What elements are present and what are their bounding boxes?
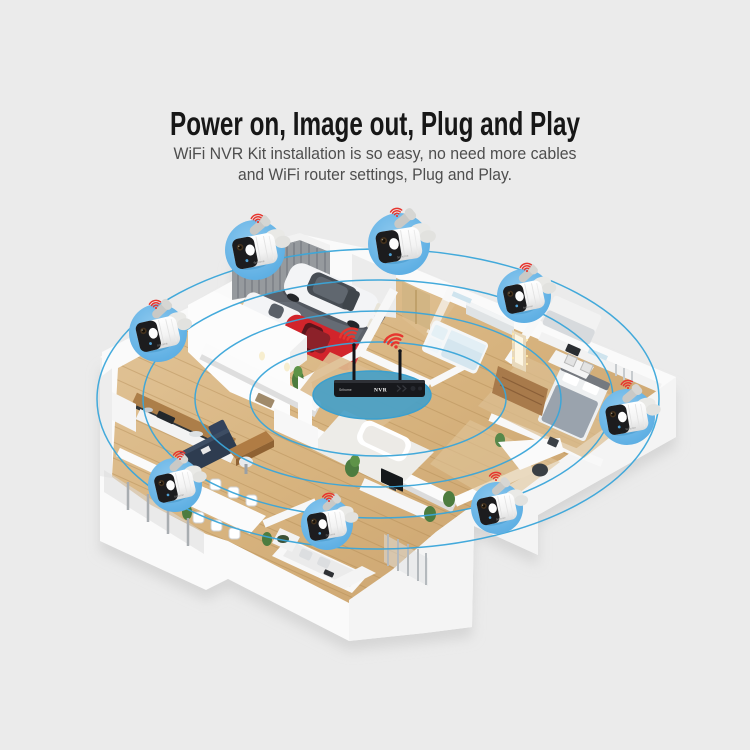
svg-text:Power on, Image out, Plug and: Power on, Image out, Plug and Play <box>170 105 580 142</box>
svg-text:Srihome: Srihome <box>339 388 352 392</box>
svg-text:NVR: NVR <box>374 388 387 394</box>
svg-text:WiFi NVR Kit installation is s: WiFi NVR Kit installation is so easy, no… <box>174 144 577 163</box>
svg-text:and WiFi router settings, Plug: and WiFi router settings, Plug and Play. <box>238 165 512 184</box>
